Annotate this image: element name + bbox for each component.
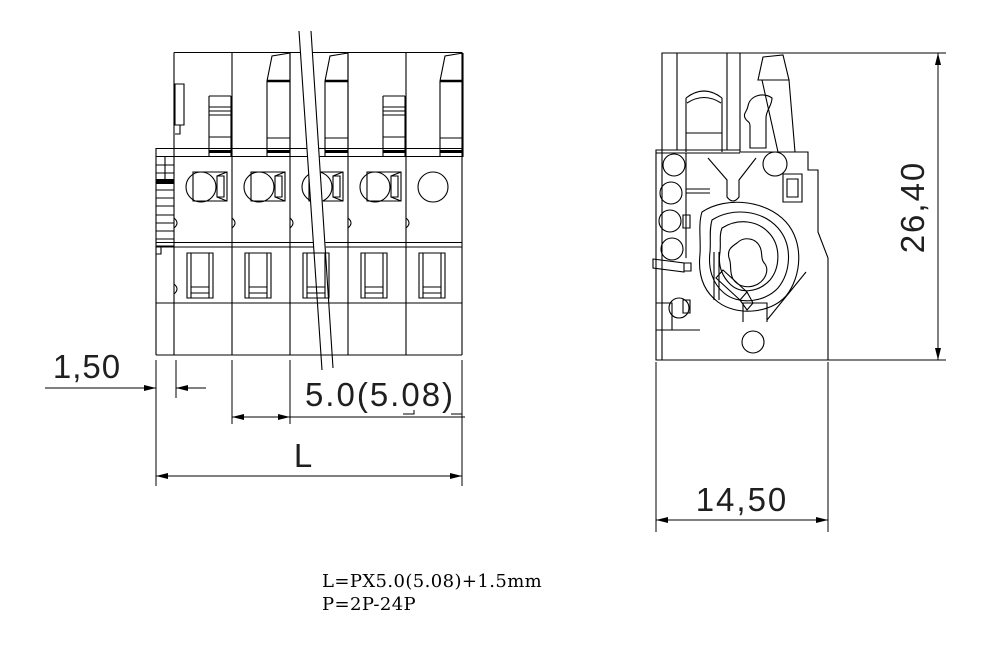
dim-margin-label: 1,50 bbox=[53, 348, 121, 385]
side-holes bbox=[659, 152, 787, 353]
release-button-side bbox=[744, 55, 795, 152]
front-left-latch bbox=[175, 84, 184, 134]
latch-hook bbox=[744, 95, 772, 148]
extension-lines-side bbox=[656, 53, 946, 532]
side-dimensions bbox=[656, 53, 946, 532]
drawing-sheet: 1,50 5.0(5.08) L bbox=[0, 0, 994, 657]
note-length-formula: L=PX5.0(5.08)+1.5mm bbox=[322, 570, 542, 593]
wire-funnel bbox=[686, 91, 756, 201]
note-position-range: P=2P-24P bbox=[322, 593, 542, 616]
side-outline bbox=[656, 53, 828, 360]
dim-length-label: L bbox=[294, 437, 314, 474]
dimension-arrows-side bbox=[656, 53, 941, 523]
side-view bbox=[653, 53, 828, 360]
drawing-notes: L=PX5.0(5.08)+1.5mm P=2P-24P bbox=[322, 570, 542, 616]
technical-drawing: 1,50 5.0(5.08) L bbox=[0, 0, 994, 657]
side-inner-walls bbox=[656, 53, 740, 360]
mounting-rail-serrations bbox=[156, 157, 174, 254]
cage-clamp-spring bbox=[700, 202, 799, 311]
side-base-details bbox=[653, 215, 806, 330]
front-view-buttons bbox=[209, 53, 463, 157]
dim-pitch-label: 5.0(5.08) bbox=[305, 376, 455, 413]
dim-height-label: 26,40 bbox=[894, 161, 931, 254]
dim-width-label: 14,50 bbox=[696, 481, 789, 518]
side-window bbox=[783, 174, 802, 202]
